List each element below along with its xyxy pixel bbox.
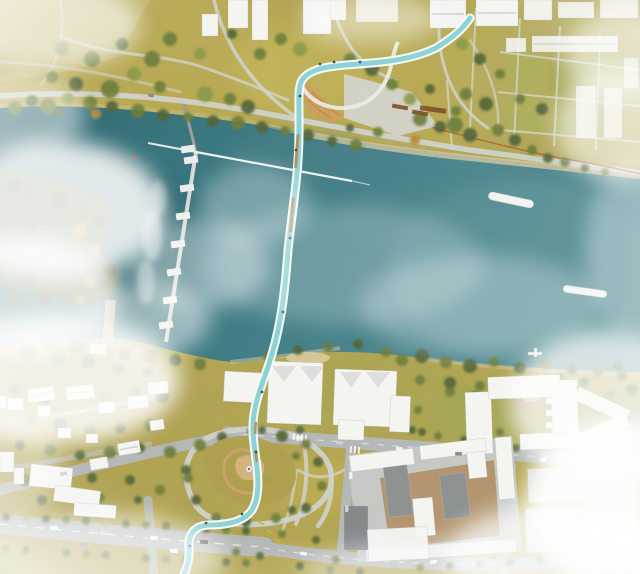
edge-vignette xyxy=(0,0,640,574)
site-plan-canvas xyxy=(0,0,640,574)
aerial-masterplan-rendering xyxy=(0,0,640,574)
